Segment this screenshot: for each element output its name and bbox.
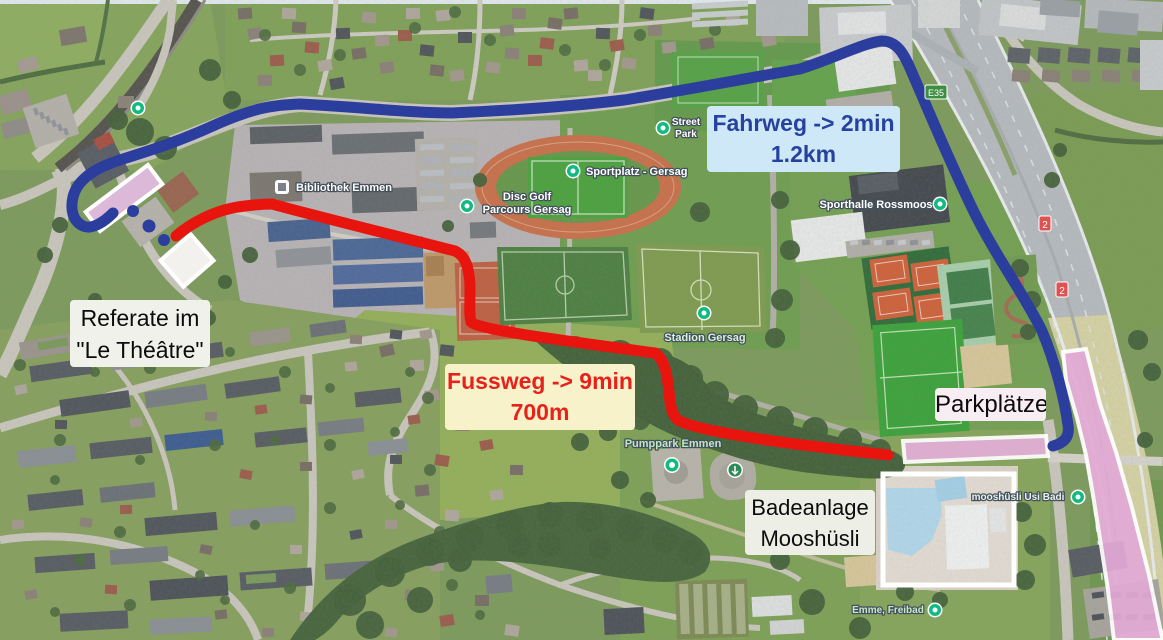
svg-text:Disc Golf: Disc Golf [503, 191, 552, 203]
svg-text:Park: Park [675, 129, 697, 140]
svg-text:Bibliothek Emmen: Bibliothek Emmen [296, 182, 392, 194]
svg-text:2: 2 [1042, 220, 1048, 231]
svg-text:Stadion Gersag: Stadion Gersag [664, 332, 745, 344]
svg-text:Sportplatz - Gersag: Sportplatz - Gersag [586, 166, 687, 178]
svg-text:E35: E35 [928, 88, 944, 98]
svg-text:Street: Street [672, 117, 701, 128]
svg-text:mooshüsli Usi Badi: mooshüsli Usi Badi [972, 492, 1065, 503]
svg-text:Pumppark Emmen: Pumppark Emmen [625, 438, 722, 450]
svg-text:2: 2 [1059, 286, 1065, 297]
svg-text:Emme, Freibad: Emme, Freibad [852, 605, 924, 616]
svg-text:Sporthalle Rossmoos: Sporthalle Rossmoos [819, 199, 932, 211]
svg-text:Parcours Gersag: Parcours Gersag [483, 204, 572, 216]
